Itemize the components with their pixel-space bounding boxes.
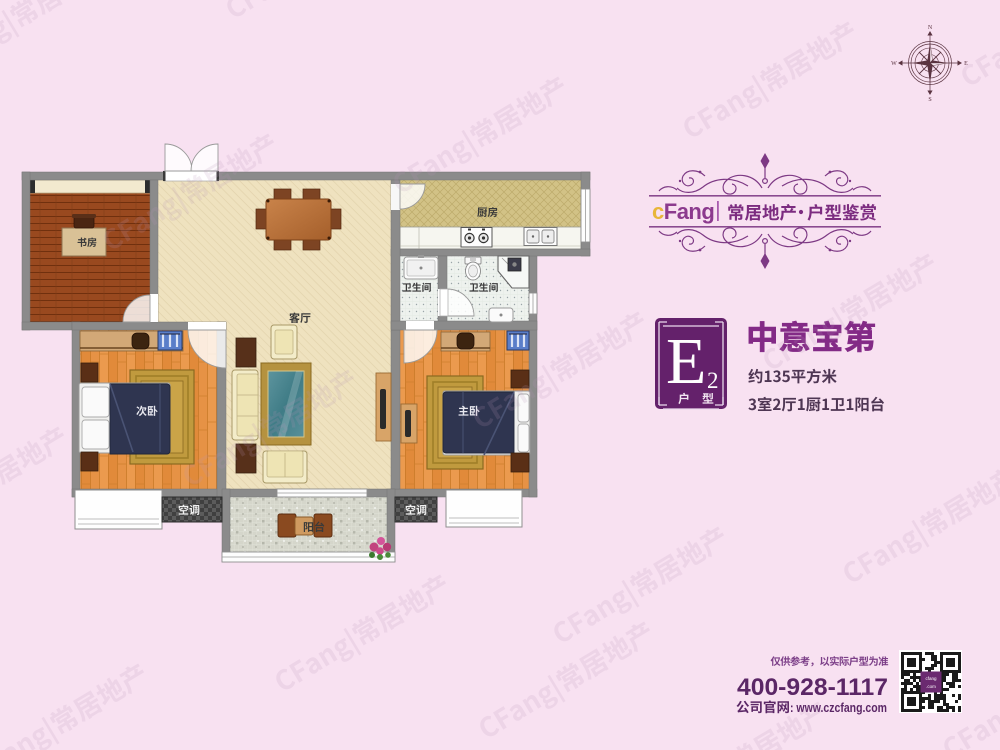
svg-text:N: N [928, 25, 933, 31]
svg-text:cFang: cFang [652, 199, 714, 224]
svg-text:cfang: cfang [925, 676, 937, 681]
svg-text:E: E [666, 325, 706, 398]
svg-text:2: 2 [707, 368, 719, 393]
svg-text:W: W [891, 61, 897, 67]
svg-text:.com: .com [926, 684, 936, 689]
svg-text:400-928-1117: 400-928-1117 [737, 674, 888, 701]
svg-text:S: S [928, 97, 931, 103]
